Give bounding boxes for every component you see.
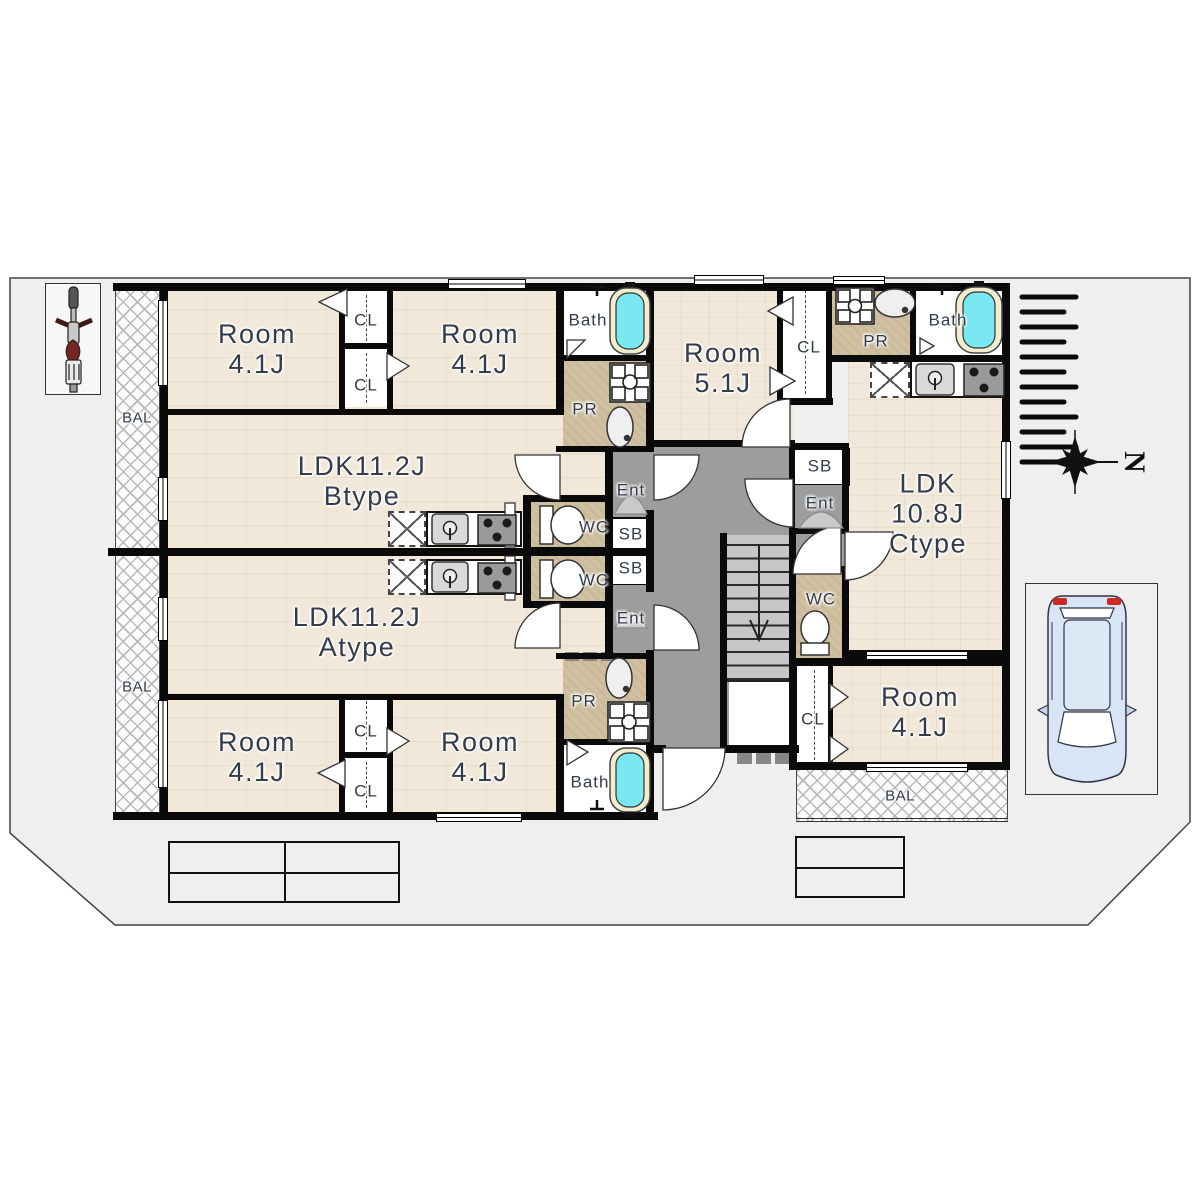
wc-a-label: WC (579, 570, 609, 589)
wall-segment (777, 283, 783, 404)
wc-c-label: WC (806, 589, 836, 608)
info-table-left (168, 841, 400, 903)
info-table-right (795, 836, 905, 898)
table-row-line (797, 867, 903, 869)
wall-segment (646, 291, 654, 450)
kitchen-counter-b (426, 511, 522, 547)
compass-star-diagonal (1062, 449, 1088, 475)
ent-a-label: Ent (617, 608, 646, 627)
entrance-vestibule (729, 682, 792, 750)
room-size-text: 4.1J (228, 349, 285, 379)
cl-b2-label: CL (354, 375, 378, 394)
cl-c2-label: CL (801, 709, 825, 728)
bal-left-label-2: BAL (122, 680, 152, 697)
bal-right-label: BAL (885, 789, 915, 806)
compass-rose: N (1042, 430, 1151, 494)
cl-b1-label: CL (354, 310, 378, 329)
pr-b-label: PR (572, 399, 598, 418)
window (833, 276, 885, 285)
wall-segment (556, 446, 654, 452)
ent-c-label: Ent (806, 493, 835, 512)
wall-segment (523, 601, 611, 608)
room-size-text: 4.1J (891, 712, 948, 742)
wall-segment (646, 650, 654, 820)
table-col-line (284, 843, 286, 901)
fridge-space-a (388, 559, 426, 595)
pr-a-label: PR (571, 691, 597, 710)
window (158, 300, 168, 386)
wall-segment (345, 343, 389, 349)
bath-b-label: Bath (569, 310, 608, 329)
wall-segment (108, 548, 160, 556)
room-type-text: Btype (324, 481, 401, 511)
room-type-text: Ctype (889, 529, 967, 559)
ent-b-label: Ent (617, 480, 646, 499)
room-size-text: 4.1J (451, 757, 508, 787)
room-name-text: LDK (899, 469, 956, 499)
wall-segment (720, 533, 727, 750)
car-stall (1025, 583, 1158, 795)
room-name-text: Room (218, 727, 296, 757)
compass-star (1049, 436, 1101, 488)
wall-segment (910, 285, 916, 357)
fridge-space-b (388, 511, 426, 547)
room-label-a2: Room 4.1J (441, 727, 519, 787)
room-label-c: Room 4.1J (881, 682, 959, 742)
bath-a-label: Bath (571, 772, 610, 791)
room-name-text: LDK11.2J (293, 602, 422, 632)
wall-segment (556, 653, 654, 659)
window (158, 477, 168, 521)
wall-segment (166, 694, 558, 700)
wall-segment (789, 658, 797, 770)
room-label-b1: Room 4.1J (218, 319, 296, 379)
wall-segment (725, 745, 799, 753)
corridor-upper (729, 443, 795, 535)
room-label-51: Room 5.1J (684, 338, 762, 398)
wall-segment (826, 283, 832, 404)
wc-c-room (793, 572, 849, 658)
north-label: N (1118, 451, 1151, 473)
window (158, 597, 168, 641)
pr-c-label: PR (863, 331, 889, 350)
window (866, 763, 968, 772)
wall-segment (777, 398, 833, 405)
wall-segment (339, 291, 345, 409)
room-label-b2: Room 4.1J (441, 319, 519, 379)
cl-a2-label: CL (354, 781, 378, 800)
wall-segment (160, 548, 654, 556)
wall-segment (563, 355, 652, 361)
room-size-text: 4.1J (228, 757, 285, 787)
wall-segment (793, 566, 849, 572)
window (436, 813, 522, 822)
room-name-text: Room (441, 319, 519, 349)
cl-c1-label: CL (797, 337, 821, 356)
kitchen-counter-c (910, 360, 1007, 398)
window (158, 700, 168, 788)
ldk-b-label: LDK11.2J Btype (298, 451, 427, 511)
bath-c-label: Bath (929, 310, 968, 329)
sb-b-label: SB (619, 524, 644, 543)
room-name-text: Room (441, 727, 519, 757)
wall-segment (789, 443, 849, 450)
room-name-text: LDK11.2J (298, 451, 427, 481)
room-size-text: 10.8J (891, 499, 965, 529)
wall-segment (563, 739, 652, 745)
wall-segment (523, 495, 611, 502)
wall-segment (826, 355, 1008, 362)
sliding-window (866, 651, 968, 660)
fridge-space-c (870, 362, 910, 398)
wall-segment (556, 694, 564, 812)
window (1001, 441, 1011, 499)
room-name-text: Room (684, 338, 762, 368)
wall-segment (842, 450, 849, 532)
wall-segment (345, 752, 389, 758)
room-label-a1: Room 4.1J (218, 727, 296, 787)
sb-c-label: SB (808, 456, 833, 475)
motorcycle-stall (45, 283, 101, 395)
floor-plan-canvas: N Room 4.1J Room (0, 0, 1200, 1200)
wall-segment (387, 291, 393, 409)
cl-a1-label: CL (354, 721, 378, 740)
wall-segment (828, 666, 833, 765)
room-size-text: 4.1J (451, 349, 508, 379)
room-size-text: 5.1J (694, 368, 751, 398)
room-name-text: Room (881, 682, 959, 712)
ldk-c-label: LDK 10.8J Ctype (889, 469, 967, 560)
wall-segment (556, 291, 564, 415)
wall-segment (648, 440, 746, 447)
wall-segment (1002, 658, 1010, 770)
window (694, 275, 764, 285)
wall-segment (789, 443, 795, 537)
kitchen-counter-a (426, 559, 522, 595)
wall-segment (842, 572, 849, 660)
wc-b-label: WC (579, 517, 609, 536)
room-type-text: Atype (319, 632, 396, 662)
bal-left-label-1: BAL (122, 411, 152, 428)
staircase (727, 535, 792, 682)
bicycle-rack (1022, 297, 1076, 462)
wall-segment (113, 812, 658, 820)
window (448, 279, 526, 289)
sb-a-label: SB (619, 558, 644, 577)
corridor-main (650, 443, 729, 753)
wall-segment (793, 528, 849, 534)
wall-segment (166, 409, 558, 415)
ldk-a-label: LDK11.2J Atype (293, 602, 422, 662)
wall-segment (654, 745, 666, 753)
room-name-text: Room (218, 319, 296, 349)
